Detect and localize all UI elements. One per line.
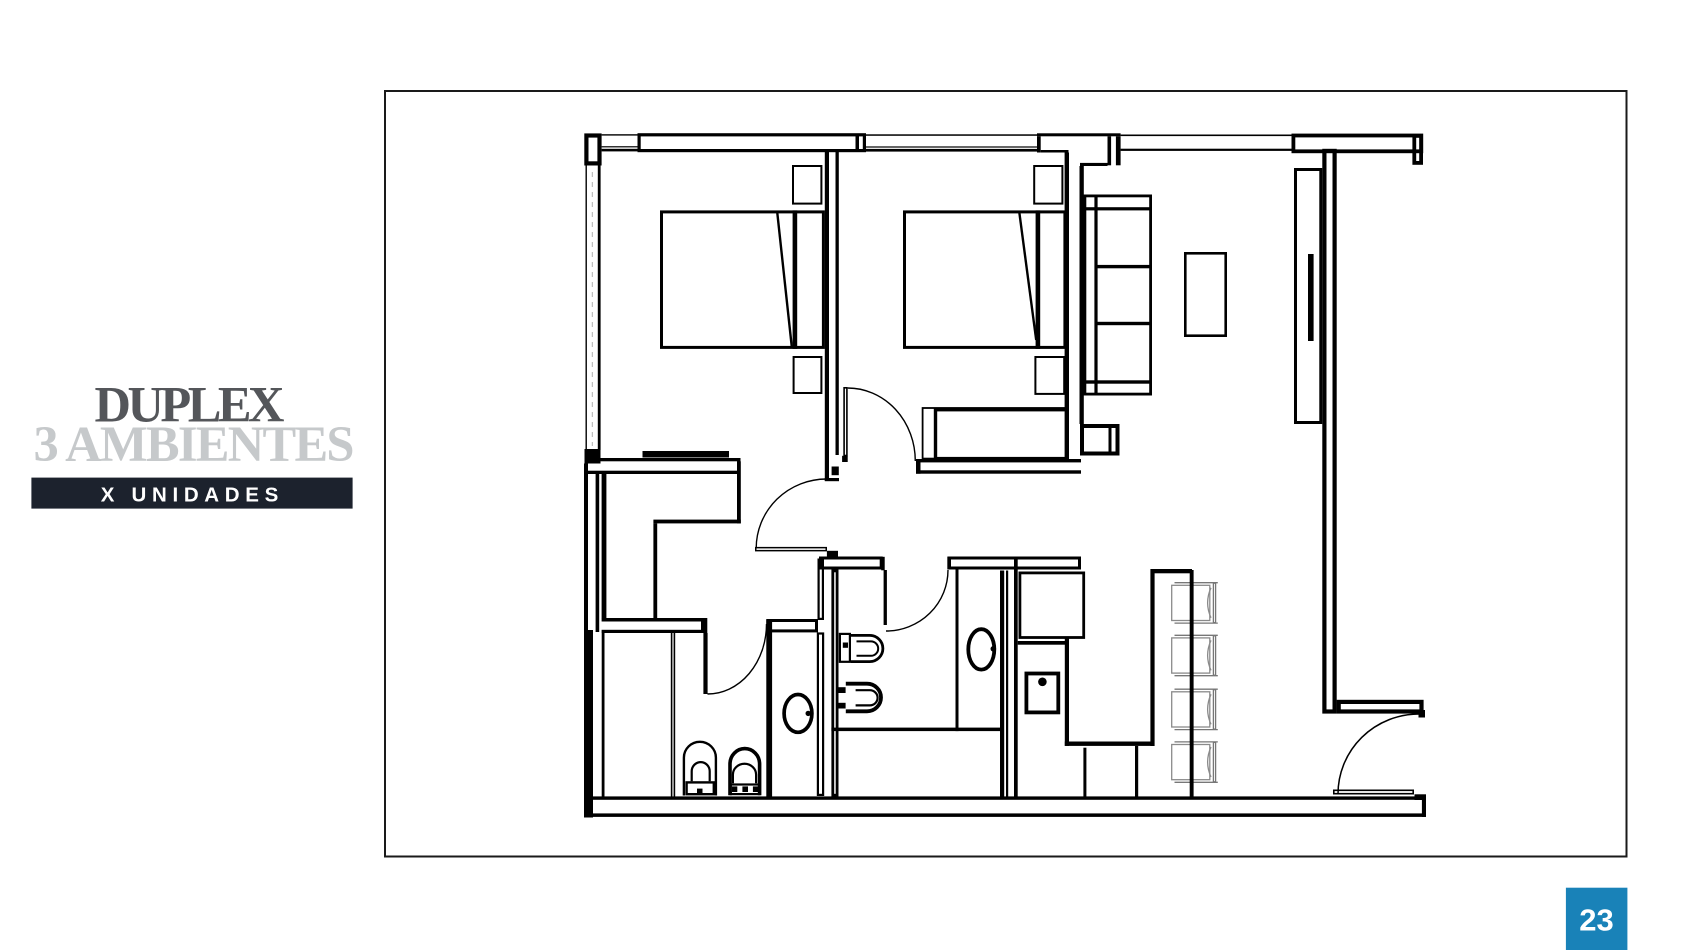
svg-text:23: 23 (1579, 903, 1613, 938)
svg-text:X UNIDADES: X UNIDADES (101, 484, 283, 507)
svg-text:3 AMBIENTES: 3 AMBIENTES (34, 416, 355, 472)
